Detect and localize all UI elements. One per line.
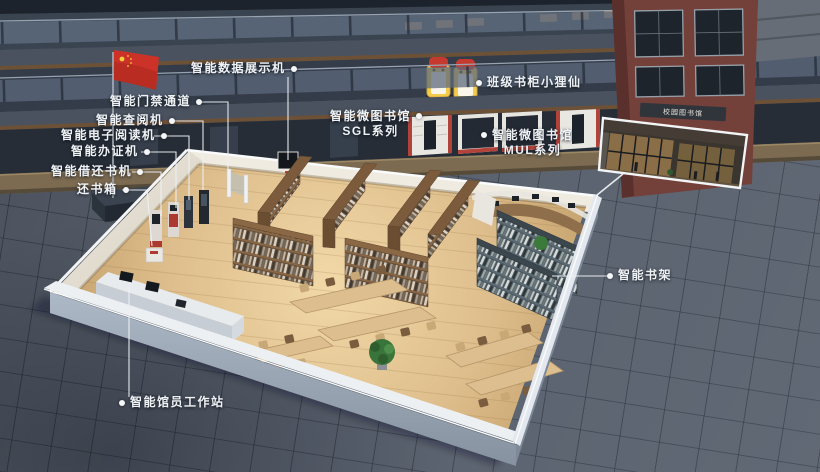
label-text: 智能书架	[618, 269, 672, 283]
small-plant	[534, 236, 548, 250]
bullet-dot	[169, 118, 175, 124]
book-return-box	[146, 248, 163, 262]
label-class-cabinet: 班级书柜小狸仙	[476, 76, 582, 90]
label-text: 智能微图书馆	[492, 128, 573, 142]
inquiry-kiosk	[199, 190, 209, 224]
bullet-dot	[137, 169, 143, 175]
label-workstation: 智能馆员工作站	[119, 396, 225, 410]
bullet-dot	[416, 113, 422, 119]
library-overview-render: 校园图书馆	[0, 0, 820, 472]
label-card-machine: 智能办证机	[71, 145, 150, 159]
label-text: 智能电子阅读机	[61, 129, 156, 143]
label-ereader-machine: 智能电子阅读机	[61, 129, 167, 143]
label-text: 智能微图书馆	[330, 109, 411, 123]
label-smart-shelf: 智能书架	[607, 269, 672, 283]
label-return-box: 还书箱	[77, 183, 129, 197]
label-text: SGL系列	[330, 124, 422, 138]
bullet-dot	[481, 132, 487, 138]
card-kiosk	[168, 202, 179, 237]
bullet-dot	[476, 80, 482, 86]
bullet-dot	[144, 149, 150, 155]
label-text: 智能馆员工作站	[130, 396, 225, 410]
label-text: 智能办证机	[71, 145, 139, 159]
bullet-dot	[161, 133, 167, 139]
label-micro-library-sgl: 智能微图书馆 SGL系列	[330, 109, 422, 139]
label-micro-library-mul: 智能微图书馆 MUL系列	[481, 128, 573, 158]
label-text: 智能门禁通道	[110, 95, 191, 109]
bullet-dot	[291, 66, 297, 72]
bullet-dot	[123, 187, 129, 193]
label-access-gate: 智能门禁通道	[110, 95, 202, 109]
label-text: 智能数据展示机	[191, 62, 286, 76]
label-text: 智能借还书机	[51, 165, 132, 179]
label-text: 班级书柜小狸仙	[487, 76, 582, 90]
ereader-kiosk	[184, 196, 193, 228]
label-inquiry-machine: 智能查阅机	[96, 114, 175, 128]
bullet-dot	[607, 273, 613, 279]
label-text: MUL系列	[481, 143, 573, 157]
bullet-dot	[119, 400, 125, 406]
label-data-display: 智能数据展示机	[191, 62, 297, 76]
label-text: 还书箱	[77, 183, 118, 197]
bullet-dot	[196, 99, 202, 105]
label-text: 智能查阅机	[96, 114, 164, 128]
label-borrow-return-machine: 智能借还书机	[51, 165, 143, 179]
line-inset-callout	[597, 174, 623, 195]
